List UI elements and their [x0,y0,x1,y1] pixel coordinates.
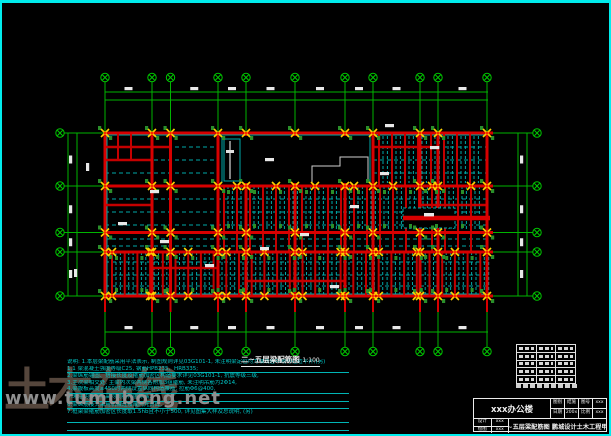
legend-caption [516,384,578,388]
title-block: xxx办公楼 图别 结施 图号 xxx 日期 200x 比例 xxx [473,398,607,432]
grid-axes-and-bubbles [56,73,541,355]
note-line [67,423,349,431]
note-line: 3.主次梁相交处, 主梁内次梁两侧各附加3组箍筋, 未注明吊筋为2Φ14, [67,380,449,387]
drafter-label: 绘图 [474,427,492,434]
field-label: 比例 [579,409,593,418]
field-value: xxx [593,399,606,408]
watermark-url: www.tumubong.net [5,388,221,409]
designer-value: xxx [492,419,509,426]
legend-table [516,344,576,384]
note-line [67,416,349,424]
plan-title: 二~五层梁配筋图 1:100 [241,354,320,367]
drafter-value: xxx [492,427,509,434]
note-line: 2.梁纵筋锚固、搭接长度及箍筋加密区构造要求详见03G101-1, 抗震等级三级… [67,373,449,380]
note-line [67,431,349,436]
field-label: 图号 [579,399,593,408]
field-value: xxx [593,409,606,418]
field-value: 结施 [565,399,579,408]
field-value: 200x [565,409,579,418]
field-label: 日期 [551,409,565,418]
plan-title-text: 二~五层梁配筋图 [241,355,300,364]
plan-title-scale: 1:100 [302,357,319,364]
note-line: 7.框架梁箍筋加密区长度取1.5hb且不小于500, 详见图集大样及总说明, (… [67,409,449,416]
cad-page: 土木在线 www.tumubong.net 说明: 1.本层梁配筋采用平法表示,… [0,0,611,436]
designer-label: 设计 [474,419,492,426]
floor-opening [222,136,370,183]
field-label: 图别 [551,399,565,408]
project-name: xxx办公楼 [474,399,551,418]
sheet-title: 二~五层梁配筋图 鹏城设计土木工程甲级 [509,419,606,433]
